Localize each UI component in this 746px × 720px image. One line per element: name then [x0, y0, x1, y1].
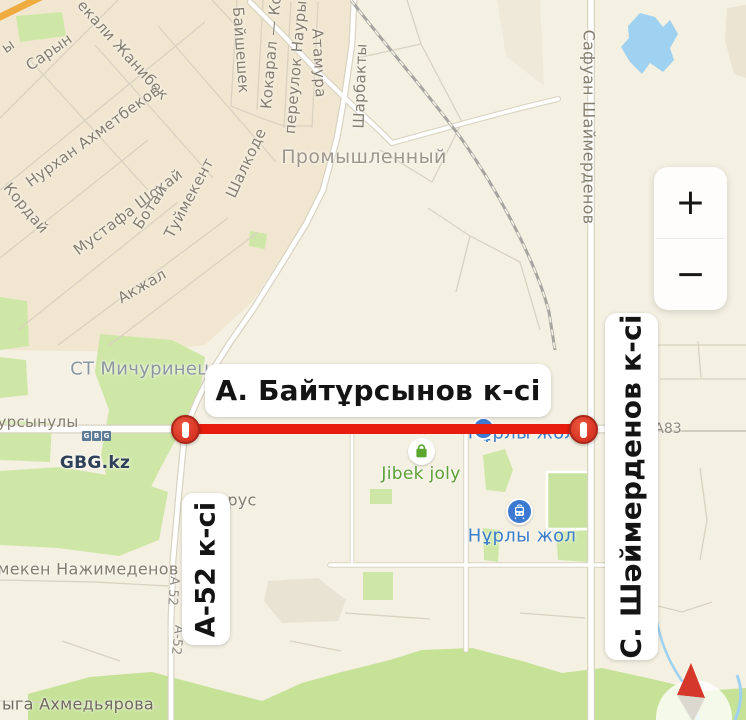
closure-street-banner: А. Байтұрсынов к-сі [205, 364, 551, 417]
place-label-promyshlenny: Промышленный [281, 146, 447, 168]
bag-glyph [414, 444, 429, 459]
road-closure-icon-left[interactable] [171, 415, 200, 444]
street-label-akhmedyarova: ыга Ахмедьярова [2, 695, 154, 714]
zoom-in-button[interactable]: + [654, 167, 727, 238]
street-label-safuan-shaymerdenov: Сафуан Шаймерденов [580, 30, 599, 225]
poi-label-jibek-joly[interactable]: Jibek joly [381, 464, 460, 484]
closure-cross-street-right-text: С. Шәймерденов к-сі [615, 314, 648, 658]
pond [621, 13, 678, 74]
road-closure-line[interactable] [185, 424, 583, 434]
lot-bottom [264, 578, 346, 623]
place-label-st-michurinets: СТ Мичуринец [70, 359, 210, 380]
street-label-partial-rus: рус [227, 491, 256, 510]
railway-station-icon[interactable] [506, 498, 533, 525]
map-canvas[interactable]: ы Сарын екали Жанибек Нурхан Ахметбеков … [0, 0, 746, 720]
closure-cross-street-left-banner: А-52 к-сі [182, 493, 230, 645]
route-marker-a83: А83 [654, 421, 681, 437]
closure-cross-street-left-text: А-52 к-сі [191, 501, 222, 637]
train-glyph [512, 504, 527, 520]
shopping-bag-icon[interactable] [408, 438, 435, 465]
gbg-logo-tile: G [82, 431, 91, 441]
gbg-logo-tile: B [92, 431, 101, 441]
route-marker-a52-1: А 52 [164, 576, 182, 607]
closure-cross-street-right-banner: С. Шәймерденов к-сі [605, 313, 658, 660]
street-label-atamura: Атамура [308, 28, 330, 98]
street-label-nazhimedenov: мекен Нажимеденов [0, 560, 179, 579]
closure-street-banner-text: А. Байтұрсынов к-сі [215, 374, 540, 407]
compass-glyph [645, 655, 745, 720]
park-square [547, 472, 591, 529]
poi-label-nurly-zhol-station[interactable]: Нұрлы жол [468, 526, 577, 547]
industrial-lot [497, 0, 544, 86]
lot-topright [725, 5, 746, 78]
closure-bar-glyph [182, 422, 189, 438]
gbg-logo-tile: G [102, 431, 111, 441]
closure-bar-glyph [580, 422, 587, 438]
street-label-sharbakty: Шарбакты [350, 43, 371, 129]
road-closure-icon-right[interactable] [569, 415, 598, 444]
street-label-ursynuly: урсынулы [0, 413, 79, 431]
zoom-control: + − [654, 167, 727, 310]
compass-control[interactable] [645, 655, 745, 720]
poi-label-gbg[interactable]: GBG.kz [60, 453, 130, 473]
gbg-logo[interactable]: GBG [82, 431, 111, 441]
zoom-out-button[interactable]: − [654, 239, 727, 310]
